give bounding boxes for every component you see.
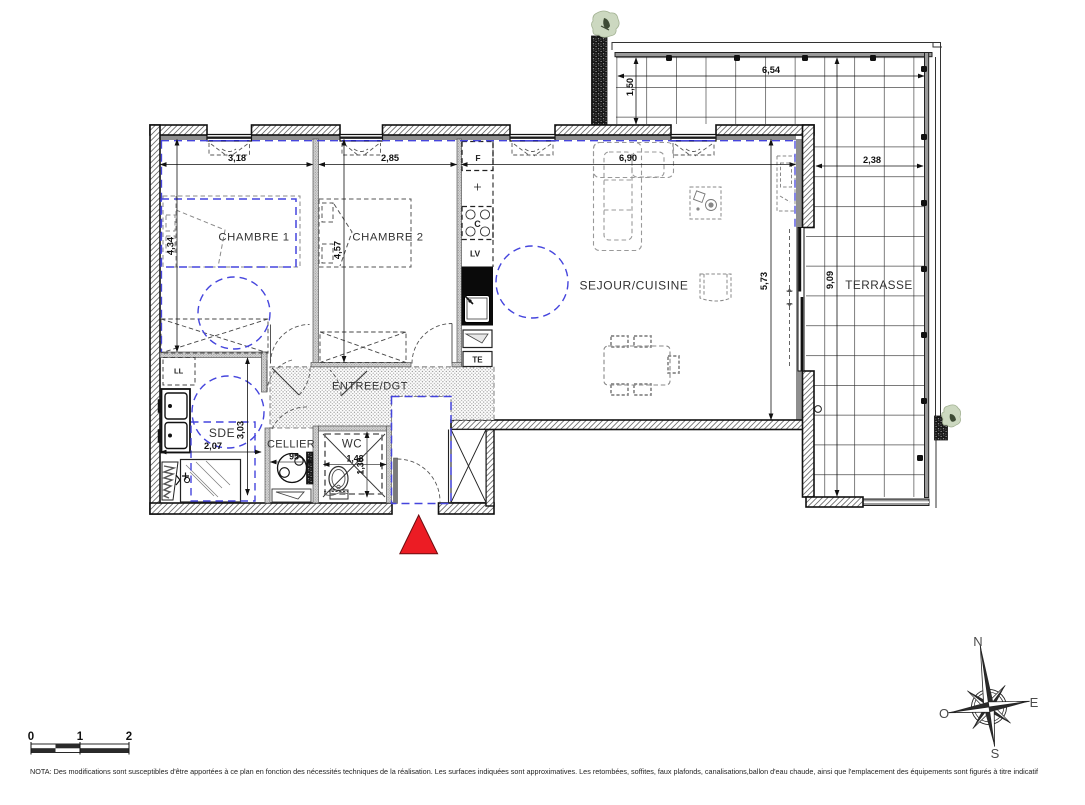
svg-text:LL: LL bbox=[174, 367, 184, 376]
svg-text:0: 0 bbox=[28, 731, 34, 743]
svg-text:2,85: 2,85 bbox=[381, 153, 399, 163]
svg-text:2: 2 bbox=[126, 731, 132, 743]
svg-text:ENTREE/DGT: ENTREE/DGT bbox=[332, 381, 408, 393]
svg-text:1: 1 bbox=[77, 731, 84, 743]
svg-text:1,50: 1,50 bbox=[625, 78, 635, 96]
svg-text:F: F bbox=[475, 153, 480, 163]
svg-text:CHAMBRE 1: CHAMBRE 1 bbox=[218, 232, 289, 244]
svg-text:1,30: 1,30 bbox=[356, 457, 366, 474]
svg-text:SEJOUR/CUISINE: SEJOUR/CUISINE bbox=[579, 279, 688, 293]
svg-text:C: C bbox=[474, 219, 481, 229]
svg-text:CHAMBRE 2: CHAMBRE 2 bbox=[352, 232, 423, 244]
svg-text:3,03: 3,03 bbox=[236, 421, 246, 439]
svg-text:TERRASSE: TERRASSE bbox=[845, 278, 913, 292]
svg-text:4,57: 4,57 bbox=[333, 241, 343, 259]
svg-text:SDE: SDE bbox=[209, 426, 235, 440]
svg-text:S: S bbox=[991, 746, 1000, 761]
svg-text:O: O bbox=[939, 706, 949, 721]
svg-text:3,18: 3,18 bbox=[228, 153, 246, 163]
svg-text:9,09: 9,09 bbox=[825, 271, 835, 289]
svg-text:2,38: 2,38 bbox=[863, 155, 881, 165]
svg-text:5,73: 5,73 bbox=[759, 272, 769, 290]
svg-text:6,90: 6,90 bbox=[619, 153, 637, 163]
svg-text:2,07: 2,07 bbox=[204, 441, 222, 451]
svg-text:NOTA: Des modifications sont s: NOTA: Des modifications sont susceptible… bbox=[30, 767, 1039, 776]
svg-text:E: E bbox=[1030, 695, 1039, 710]
svg-text:95: 95 bbox=[289, 452, 299, 462]
svg-text:TE: TE bbox=[472, 356, 483, 365]
svg-text:6,54: 6,54 bbox=[762, 65, 781, 75]
svg-text:CELLIER: CELLIER bbox=[267, 439, 315, 451]
svg-text:4,34: 4,34 bbox=[166, 236, 176, 255]
svg-text:LV: LV bbox=[470, 249, 481, 259]
svg-text:WC: WC bbox=[342, 439, 362, 451]
svg-text:N: N bbox=[973, 634, 982, 649]
